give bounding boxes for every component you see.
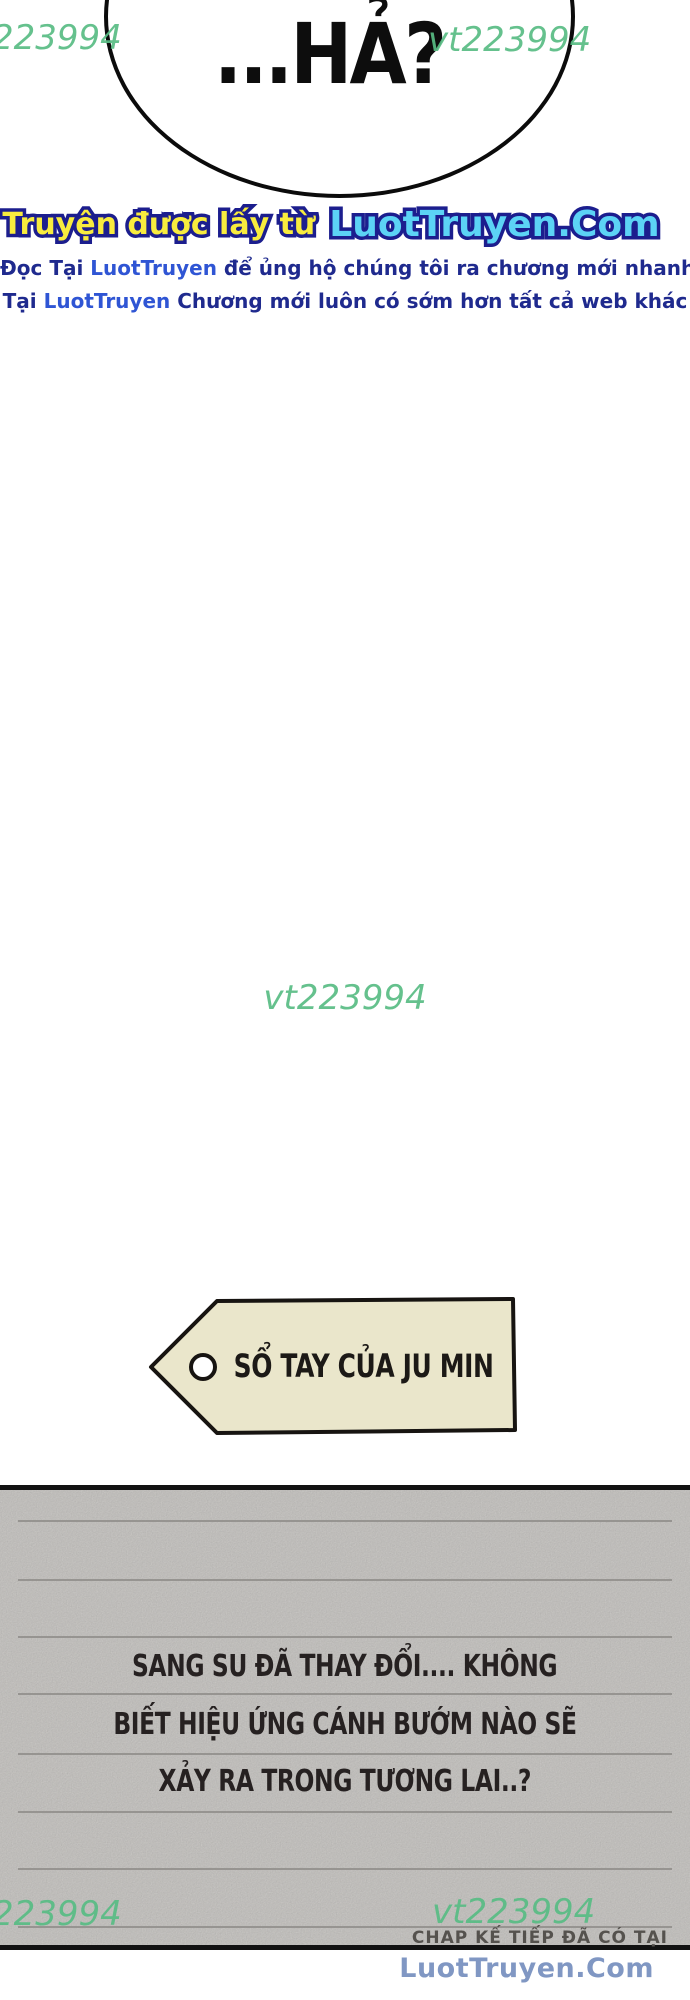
ruled-line [18,1636,672,1638]
notebook-text-line: BIẾT HIỆU ỨNG CÁNH BƯỚM NÀO SẼ [0,1703,690,1747]
promo-line-1-pre: Đọc Tại [0,256,83,280]
tag-label: SỔ TAY CỦA JU MIN [218,1296,510,1436]
watermark-middle: vt223994 [0,978,690,1018]
site-branding: Truyện được lấy từ LuotTruyen.Com [0,198,676,250]
promo-line-2-site: LuotTruyen [44,289,171,313]
promo-line-2-post: Chương mới luôn có sớm hơn tất cả web kh… [177,289,687,313]
watermark-top-left: 223994 [0,18,122,58]
footer-site-name: LuotTruyen.Com [399,1953,654,1984]
ruled-line [18,1579,672,1581]
speech-bubble-text: ...HẢ? [214,0,444,108]
tag-hole-icon [191,1355,215,1379]
promo-line-2-pre: Tại [3,289,37,313]
watermark-bottom-left: 223994 [0,1894,122,1934]
ruled-line [18,1753,672,1755]
promo-line-1-site: LuotTruyen [90,256,217,280]
promo-line-2: Tại LuotTruyen Chương mới luôn có sớm hơ… [0,287,690,315]
promo-line-1-post: để ủng hộ chúng tôi ra chương mới nhanh … [224,256,690,280]
watermark-bottom-right: vt223994 [432,1892,595,1932]
branding-prefix-text: Truyện được lấy từ [2,207,315,242]
ruled-line [18,1693,672,1695]
notebook-tag: SỔ TAY CỦA JU MIN [148,1296,518,1436]
notebook-panel: SANG SU ĐÃ THAY ĐỔI.... KHÔNG BIẾT HIỆU … [0,1485,690,1950]
ruled-line [18,1868,672,1870]
notebook-text-line: SANG SU ĐÃ THAY ĐỔI.... KHÔNG [0,1645,690,1689]
ruled-line [18,1811,672,1813]
notebook-text-line: XẢY RA TRONG TƯƠNG LAI..? [0,1760,690,1804]
watermark-top-right: vt223994 [428,20,591,60]
next-chapter-notice: CHAP KẾ TIẾP ĐÃ CÓ TẠI [412,1928,668,1948]
promo-line-1: Đọc Tại LuotTruyen để ủng hộ chúng tôi r… [0,254,690,282]
comic-page: ...HẢ? 223994 vt223994 Truyện được lấy t… [0,0,690,2000]
branding-site-name: LuotTruyen.Com [329,204,659,245]
ruled-line [18,1520,672,1522]
